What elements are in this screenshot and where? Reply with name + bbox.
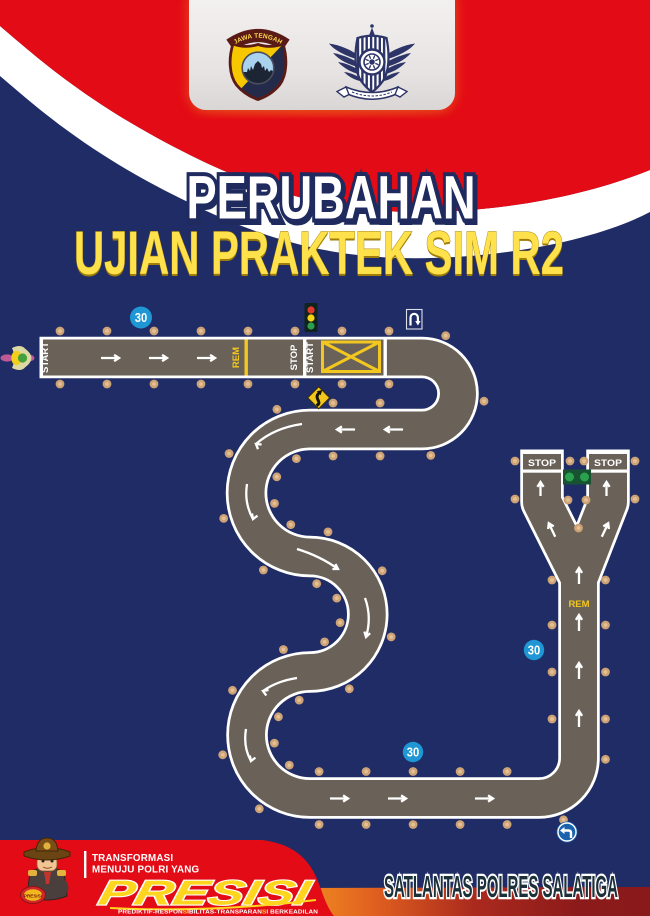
svg-text:PRESISI: PRESISI	[24, 894, 42, 899]
svg-text:START: START	[305, 342, 316, 373]
svg-text:STOP: STOP	[528, 458, 557, 469]
svg-text:30: 30	[528, 643, 541, 658]
svg-text:REM: REM	[231, 347, 242, 368]
svg-text:REM: REM	[568, 599, 589, 610]
svg-text:SATLANTAS POLRES SALATIGA: SATLANTAS POLRES SALATIGA	[384, 869, 618, 904]
svg-text:STOP: STOP	[289, 344, 300, 370]
svg-text:30: 30	[407, 745, 420, 760]
svg-text:PRESISI: PRESISI	[95, 874, 316, 912]
svg-text:30: 30	[135, 310, 148, 325]
svg-text:UJIAN PRAKTEK SIM R2: UJIAN PRAKTEK SIM R2	[74, 219, 564, 287]
svg-text:STOP: STOP	[594, 458, 623, 469]
svg-text:TRANSFORMASI: TRANSFORMASI	[92, 853, 173, 864]
svg-text:START: START	[40, 342, 51, 373]
svg-text:PREDIKTIF-RESPONSIBILITAS-TRAN: PREDIKTIF-RESPONSIBILITAS-TRANSPARANSI B…	[118, 910, 318, 916]
